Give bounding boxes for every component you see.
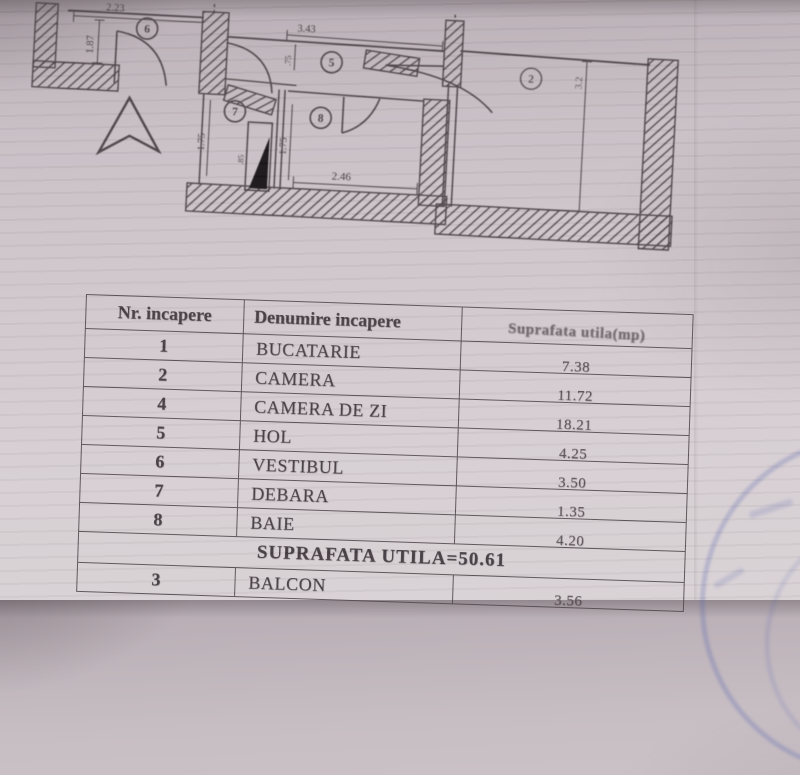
door-vestibul-arc	[114, 31, 169, 86]
dim-left-height: 1.87	[85, 35, 97, 54]
room-number-debara: 7	[232, 106, 239, 118]
row-nr: 3	[151, 569, 161, 589]
wall-bottom-middle	[186, 183, 447, 225]
row-nr: 2	[158, 364, 168, 384]
col-header-name-label: Denumire incapere	[254, 307, 401, 332]
room-number-hol: 5	[328, 57, 335, 69]
room-areas: Nr. incapere Denumire incapere Suprafata…	[76, 294, 694, 612]
dim-baie-height: 1.75	[278, 137, 290, 155]
row-nr: 4	[157, 393, 167, 413]
floor-plan: 2.23 1.87 3.43 .75 1.75 1.75 2.46 .85 3.…	[0, 0, 800, 300]
row-name: HOL	[253, 425, 292, 446]
cell-name: BALCON	[234, 568, 453, 604]
stamp-circle-inner	[765, 520, 800, 768]
row-area: 3.50	[558, 475, 587, 493]
north-arrow-icon	[99, 96, 162, 155]
summary-label: SUPRAFATA UTILA=50.61	[257, 542, 507, 571]
row-nr: 7	[154, 480, 164, 500]
row-name: VESTIBUL	[252, 454, 344, 477]
stamp-text-mark	[748, 498, 794, 519]
row-name: BAIE	[250, 512, 295, 533]
door-baie	[342, 97, 344, 133]
col-header-area-label: Suprafata utila(mp)	[508, 321, 646, 345]
paper-fold	[694, 0, 698, 600]
row-name: CAMERA	[255, 367, 336, 390]
dim-camera-height: 3.2	[574, 77, 586, 90]
shaft-triangle	[249, 136, 270, 189]
door-baie-arc	[342, 97, 380, 135]
wall-piece-top	[364, 50, 420, 76]
row-area: 1.35	[557, 504, 586, 522]
dim-baie-width: 2.46	[331, 170, 351, 183]
cell-nr: 3	[77, 562, 236, 596]
row-nr: 6	[155, 451, 165, 471]
wall-left-vertical	[33, 3, 58, 68]
dim-top-width: 2.23	[106, 2, 125, 14]
row-name: BALCON	[248, 572, 326, 595]
dim-hol-depth: .75	[282, 55, 293, 66]
col-header-nr: Nr. incapere	[85, 295, 244, 334]
wall-left-horizontal	[32, 61, 119, 91]
room-number-camera: 2	[528, 74, 535, 86]
row-nr: 8	[153, 509, 163, 529]
row-nr: 1	[159, 335, 169, 355]
row-area: 11.72	[557, 388, 593, 406]
wall-pier-vestibul	[199, 11, 229, 94]
row-name: CAMERA DE ZI	[254, 396, 388, 420]
area-table: Nr. incapere Denumire incapere Suprafata…	[76, 294, 694, 612]
row-nr: 5	[156, 422, 166, 442]
row-area: 4.25	[559, 446, 588, 464]
dim-hol-width: 3.43	[297, 23, 316, 35]
row-name: DEBARA	[251, 483, 329, 506]
row-name: BUCATARIE	[256, 338, 362, 361]
row-area: 4.20	[556, 533, 585, 551]
wall-bottom-right	[435, 204, 672, 246]
dim-shaft-width: .85	[236, 154, 246, 164]
shaft	[245, 122, 273, 191]
room-number-baie: 8	[317, 113, 324, 125]
row-area: 18.21	[556, 417, 593, 435]
wall-pier-entrance	[443, 20, 464, 87]
room-number-vestibul: 6	[144, 23, 151, 35]
row-area: 3.56	[554, 593, 583, 611]
stamp-text-mark	[713, 567, 745, 589]
row-area: 7.38	[562, 359, 591, 377]
stamp-circle-outer	[700, 435, 800, 775]
col-header-nr-label: Nr. incapere	[117, 302, 212, 325]
room-markers	[132, 18, 544, 140]
dim-debara-height: 1.75	[196, 133, 208, 151]
